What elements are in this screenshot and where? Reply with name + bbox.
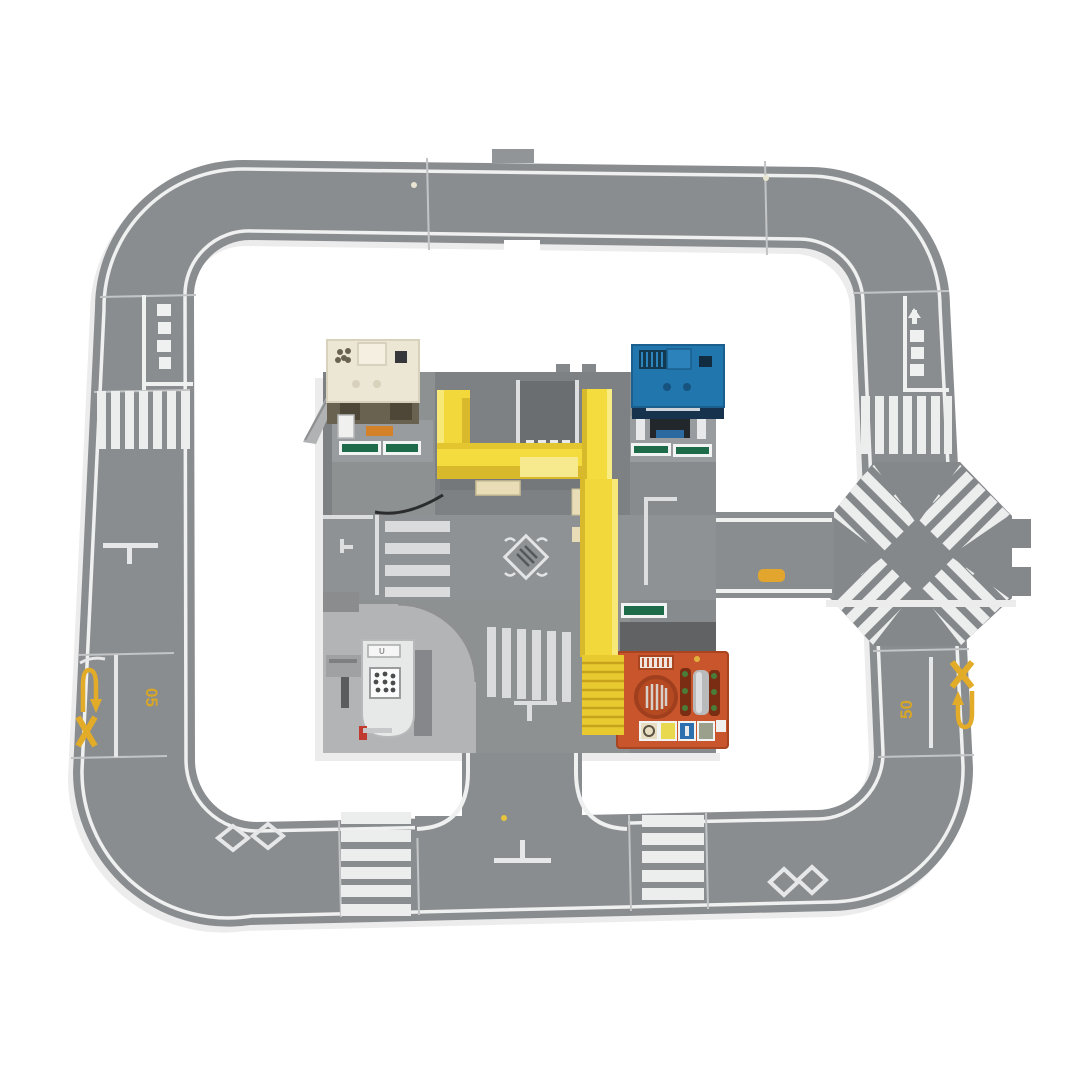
- svg-text:50: 50: [897, 700, 916, 719]
- svg-text:05: 05: [142, 688, 161, 707]
- svg-text:U: U: [379, 647, 385, 656]
